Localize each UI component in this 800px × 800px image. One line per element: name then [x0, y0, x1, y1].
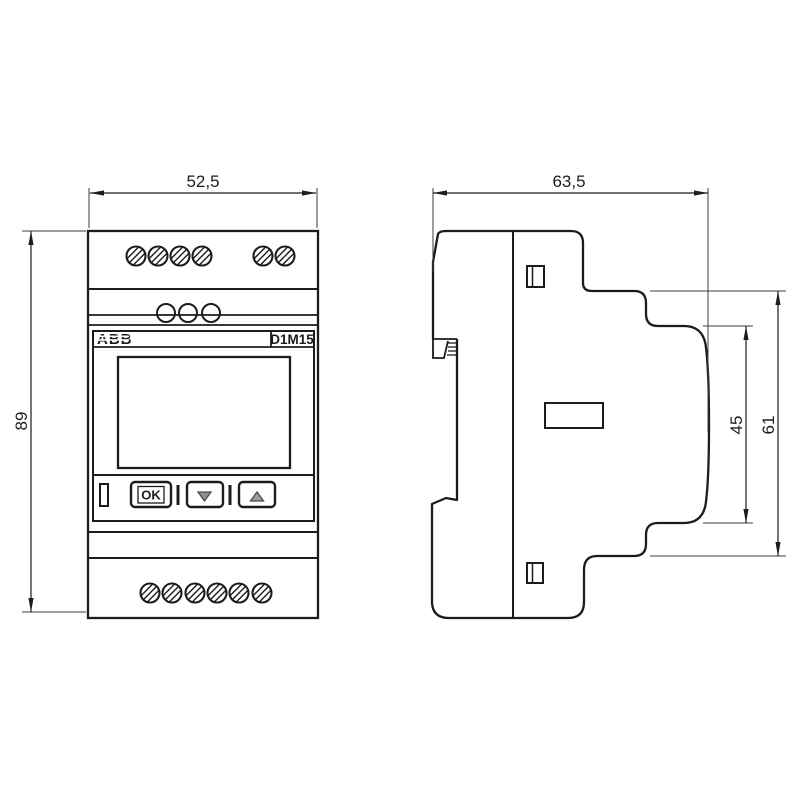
terminal-screw [208, 584, 227, 603]
led-indicator [100, 484, 108, 506]
terminal-screw [171, 247, 190, 266]
clip-window [527, 266, 544, 287]
brand-logo: ABB [96, 331, 133, 348]
side-label-recess [545, 403, 603, 428]
terminal-screw [186, 584, 205, 603]
dim-arrowhead [743, 509, 748, 523]
dim-width-label: 52,5 [186, 172, 219, 191]
ok-button-label: OK [141, 488, 161, 503]
terminal-screw [163, 584, 182, 603]
clip-window [527, 563, 543, 583]
front-view: ABB D1M15 OK [88, 231, 318, 618]
model-label: D1M15 [270, 332, 314, 347]
lower-clip-window [527, 563, 543, 583]
dim-height-label: 89 [12, 412, 31, 431]
terminal-screw [254, 247, 273, 266]
dim-outer-height-label: 61 [759, 416, 778, 435]
dimensional-drawing: ABB D1M15 OK [0, 0, 800, 800]
dim-inner-height-label: 45 [727, 416, 746, 435]
terminal-screw [230, 584, 249, 603]
side-view [432, 231, 709, 618]
dim-arrowhead [28, 598, 33, 612]
terminal-screw [193, 247, 212, 266]
dim-arrowhead [28, 231, 33, 245]
lcd-display [118, 357, 290, 468]
dim-arrowhead [775, 542, 780, 556]
terminal-screw [276, 247, 295, 266]
dim-arrowhead [743, 326, 748, 340]
dim-arrowhead [433, 190, 447, 195]
terminal-screw [127, 247, 146, 266]
dim-arrowhead [694, 190, 708, 195]
dim-arrowhead [775, 291, 780, 305]
terminal-screw [141, 584, 160, 603]
dim-depth-label: 63,5 [552, 172, 585, 191]
terminal-screw [253, 584, 272, 603]
dim-arrowhead [302, 190, 316, 195]
logo-stripe [96, 336, 129, 338]
logo-stripe [96, 339, 129, 341]
technical-drawing-page: ABB D1M15 OK [0, 0, 800, 800]
model-badge: D1M15 [270, 331, 314, 347]
button-separator [177, 485, 180, 505]
upper-clip-window [527, 266, 544, 287]
terminal-screw [149, 247, 168, 266]
button-separator [229, 485, 232, 505]
dim-arrowhead [90, 190, 104, 195]
din-rail-clip [433, 339, 457, 358]
